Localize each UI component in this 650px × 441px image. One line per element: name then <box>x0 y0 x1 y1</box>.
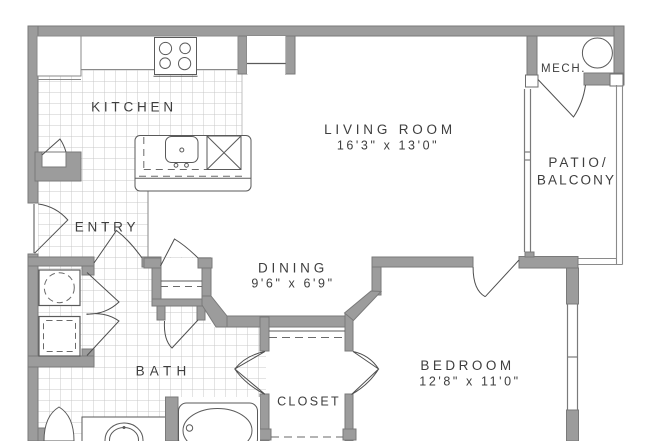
svg-text:BATH: BATH <box>136 364 192 379</box>
svg-text:ENTRY: ENTRY <box>75 219 140 234</box>
svg-text:BALCONY: BALCONY <box>537 172 616 187</box>
svg-text:CLOSET: CLOSET <box>277 395 341 409</box>
svg-text:DINING: DINING <box>258 261 328 276</box>
svg-text:12'8" x 11'0": 12'8" x 11'0" <box>419 375 520 389</box>
svg-text:16'3" x 13'0": 16'3" x 13'0" <box>337 139 439 153</box>
svg-text:MECH.: MECH. <box>541 63 586 75</box>
svg-text:KITCHEN: KITCHEN <box>91 100 177 115</box>
svg-text:BEDROOM: BEDROOM <box>420 358 514 373</box>
svg-text:PATIO/: PATIO/ <box>548 155 608 170</box>
svg-text:9'6" x 6'9": 9'6" x 6'9" <box>251 276 334 290</box>
svg-text:LIVING ROOM: LIVING ROOM <box>324 122 456 137</box>
